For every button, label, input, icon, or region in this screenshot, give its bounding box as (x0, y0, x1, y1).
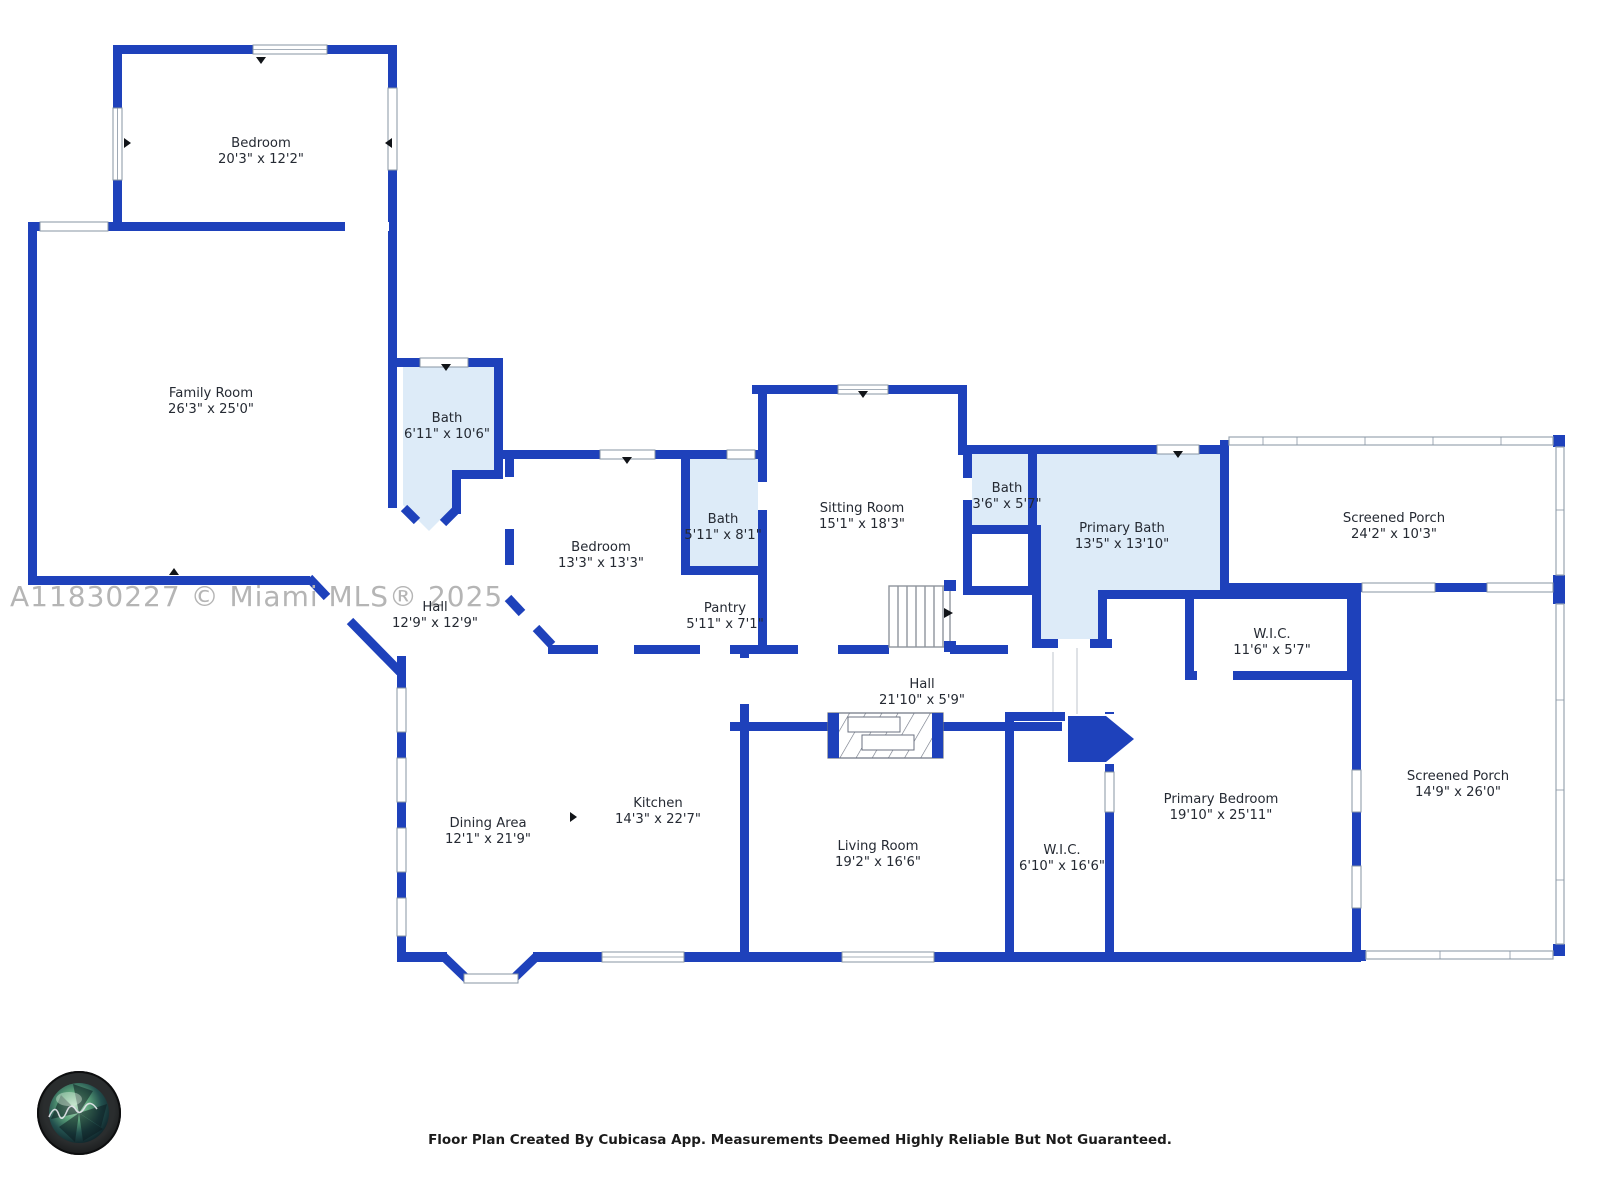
room-label-wic-1: W.I.C.11'6" x 5'7" (1233, 627, 1311, 658)
entry-arrow-icon (1068, 716, 1134, 762)
room-label-sitting-room: Sitting Room15'1" x 18'3" (819, 501, 905, 532)
room-label-screened-porch-top: Screened Porch24'2" x 10'3" (1343, 511, 1445, 542)
floor-plan-canvas: A11830227 © Miami MLS® 2025 Bedroom20'3"… (0, 0, 1600, 1200)
room-labels: Bedroom20'3" x 12'2"Family Room26'3" x 2… (168, 136, 1509, 874)
floor-plan-page: A11830227 © Miami MLS® 2025 Bedroom20'3"… (0, 0, 1600, 1200)
room-label-kitchen: Kitchen14'3" x 22'7" (615, 796, 701, 827)
door-window-ticks (124, 57, 1183, 822)
walls (28, 45, 1565, 962)
room-label-bedroom-2: Bedroom13'3" x 13'3" (558, 540, 644, 571)
room-label-dining-area: Dining Area12'1" x 21'9" (445, 816, 531, 847)
room-label-living-room: Living Room19'2" x 16'6" (835, 839, 921, 870)
room-label-screened-porch-right: Screened Porch14'9" x 26'0" (1407, 769, 1509, 800)
closet-sliding-doors (828, 713, 943, 758)
room-label-primary-bedroom: Primary Bedroom19'10" x 25'11" (1164, 792, 1279, 823)
room-label-family-room: Family Room26'3" x 25'0" (168, 386, 254, 417)
stairs-icon (889, 580, 956, 652)
room-label-wic-2: W.I.C.6'10" x 16'6" (1019, 843, 1105, 874)
diagonal-walls (309, 508, 552, 980)
room-label-hall-2: Hall21'10" x 5'9" (879, 677, 965, 708)
room-label-bedroom-top: Bedroom20'3" x 12'2" (218, 136, 304, 167)
room-label-pantry: Pantry5'11" x 7'1" (686, 601, 764, 632)
room-label-primary-bath: Primary Bath13'5" x 13'10" (1075, 521, 1169, 552)
bath-room-fills (403, 367, 1220, 639)
windows (40, 45, 1553, 983)
footer-disclaimer: Floor Plan Created By Cubicasa App. Meas… (0, 1132, 1600, 1148)
